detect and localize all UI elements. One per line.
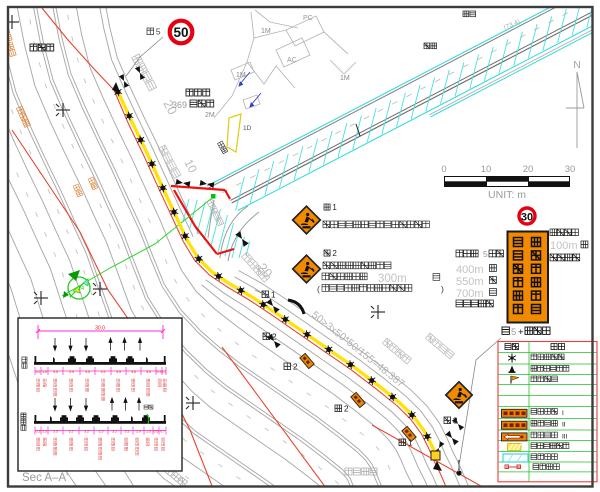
svg-text:1: 1	[408, 438, 413, 448]
svg-text:2: 2	[332, 249, 337, 258]
svg-text:1.5: 1.5	[42, 370, 47, 374]
svg-text:3.5: 3.5	[53, 429, 58, 433]
svg-text:3.5: 3.5	[131, 370, 136, 374]
svg-text:3.2: 3.2	[125, 429, 130, 433]
svg-text:5: 5	[156, 27, 161, 37]
svg-text:100m: 100m	[550, 240, 578, 252]
svg-text:3.5: 3.5	[53, 370, 58, 374]
svg-text:(: (	[317, 284, 320, 294]
svg-text:10: 10	[481, 164, 492, 175]
svg-text:2M: 2M	[205, 112, 215, 119]
svg-text:0.7: 0.7	[160, 429, 165, 433]
svg-text:3: 3	[453, 416, 458, 426]
svg-text:2.5: 2.5	[99, 429, 104, 433]
svg-text:N: N	[573, 59, 581, 71]
svg-text:30: 30	[521, 212, 533, 224]
svg-text:2.7: 2.7	[162, 370, 167, 374]
svg-text:Sec A–A': Sec A–A'	[22, 472, 68, 484]
svg-text:300m: 300m	[378, 273, 407, 285]
svg-text:0.2: 0.2	[36, 429, 41, 433]
svg-text:30: 30	[565, 164, 576, 175]
svg-text:1: 1	[271, 290, 276, 300]
svg-text:3.5: 3.5	[85, 370, 90, 374]
svg-text:+: +	[518, 327, 524, 338]
svg-text:1M: 1M	[261, 28, 271, 35]
svg-text:369: 369	[172, 100, 187, 110]
svg-text:30.0: 30.0	[95, 326, 105, 332]
svg-text:0.5: 0.5	[154, 429, 159, 433]
svg-text:24: 24	[78, 286, 84, 292]
svg-text:2.0: 2.0	[136, 429, 141, 433]
svg-text:3.2: 3.2	[69, 429, 74, 433]
svg-text:1: 1	[332, 203, 337, 212]
svg-text:2: 2	[344, 404, 349, 414]
svg-text:UNIT: m: UNIT: m	[488, 189, 526, 201]
svg-text:II: II	[562, 422, 566, 429]
svg-text:2: 2	[272, 332, 277, 342]
svg-text:1.5: 1.5	[42, 429, 47, 433]
svg-text:1M: 1M	[340, 75, 350, 82]
svg-text:20: 20	[523, 164, 534, 175]
svg-text:3.2: 3.2	[84, 429, 89, 433]
svg-text:3.5: 3.5	[116, 370, 121, 374]
svg-text:3.5: 3.5	[146, 370, 151, 374]
svg-text:1.5: 1.5	[146, 429, 151, 433]
svg-text:3.5: 3.5	[69, 370, 74, 374]
svg-text:0: 0	[441, 164, 446, 175]
svg-text:400m: 400m	[456, 264, 484, 276]
svg-text:3.2: 3.2	[112, 429, 117, 433]
svg-text:2: 2	[293, 362, 298, 372]
svg-text:1M: 1M	[236, 72, 246, 79]
svg-text:1D: 1D	[243, 125, 252, 132]
svg-text:2.5: 2.5	[101, 370, 106, 374]
svg-text:5: 5	[511, 327, 516, 338]
svg-text:50: 50	[173, 25, 188, 40]
svg-text:): )	[441, 284, 444, 294]
svg-text:700m: 700m	[456, 288, 484, 300]
svg-text:III: III	[562, 433, 568, 440]
svg-text:0.2: 0.2	[36, 370, 41, 374]
svg-text:5: 5	[483, 249, 488, 259]
svg-text:PC: PC	[303, 15, 313, 22]
svg-text:I: I	[562, 410, 564, 417]
svg-text:AC: AC	[287, 57, 297, 64]
svg-text:550m: 550m	[456, 276, 484, 288]
